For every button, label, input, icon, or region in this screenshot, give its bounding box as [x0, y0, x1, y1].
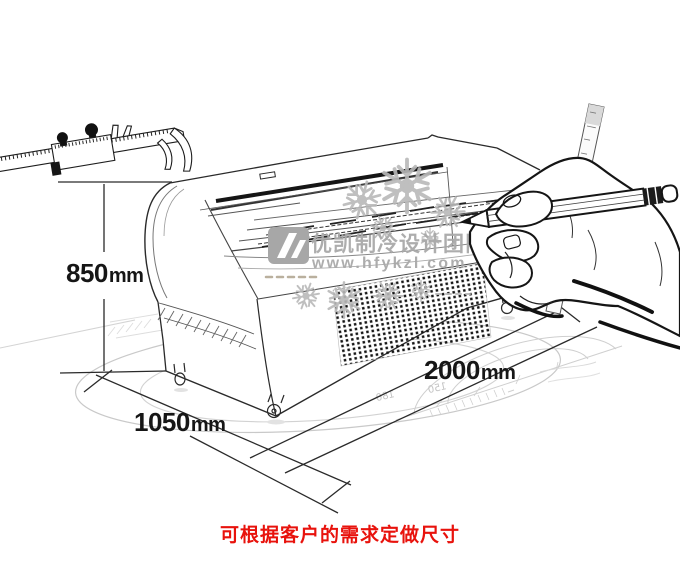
depth-value: 1050: [134, 407, 190, 437]
product-dimension-diagram: 180 150: [0, 0, 680, 578]
height-unit: mm: [109, 265, 144, 287]
length-value: 2000: [424, 355, 480, 385]
base-illustration: 180 150: [0, 0, 680, 578]
customization-note: 可根据客户的需求定做尺寸: [0, 520, 680, 547]
caliper-thumb-screw: [84, 122, 99, 137]
height-dimension-label: 850mm: [66, 258, 143, 289]
watermark-brand-text: 优凯制冷设计团队: [311, 228, 487, 258]
length-unit: mm: [481, 362, 516, 384]
watermark-website-text: www.hfykzl.com: [312, 255, 467, 273]
length-dimension-label: 2000mm: [424, 355, 515, 386]
height-value: 850: [66, 258, 108, 288]
depth-dimension-label: 1050mm: [134, 407, 225, 438]
depth-unit: mm: [191, 414, 226, 436]
floor-hatch-patch: [108, 314, 163, 338]
